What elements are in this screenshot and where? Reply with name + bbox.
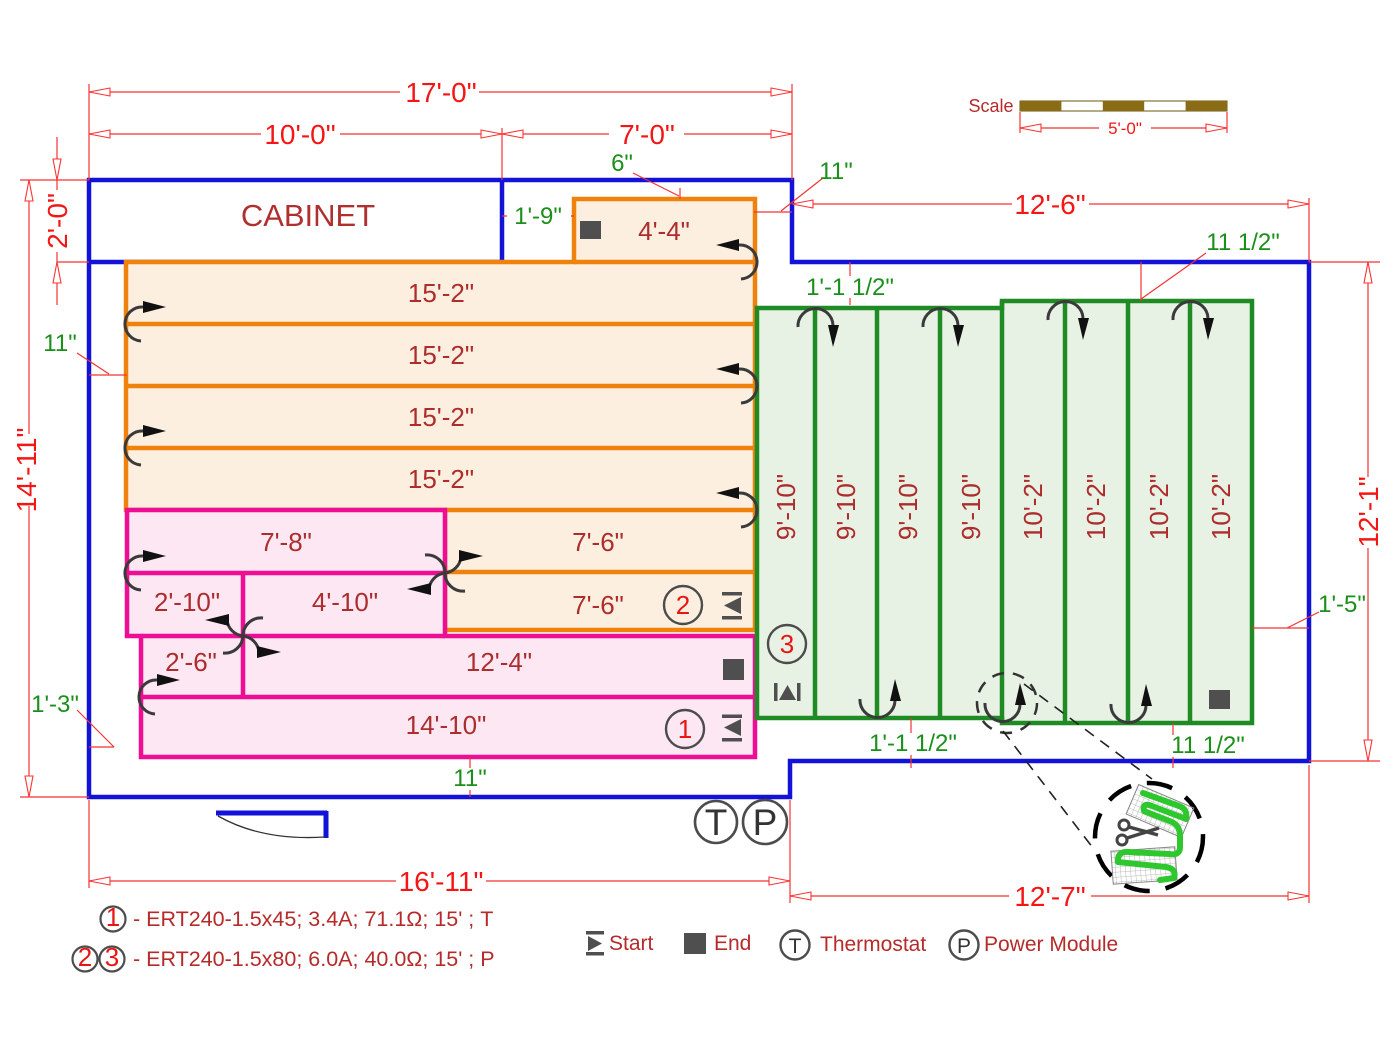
svg-text:1: 1 [106, 902, 120, 932]
svg-text:9'-10": 9'-10" [956, 474, 986, 540]
svg-text:10'-2": 10'-2" [1206, 474, 1236, 540]
svg-text:2'-10": 2'-10" [154, 587, 220, 617]
svg-text:3: 3 [105, 942, 119, 972]
svg-text:11": 11" [453, 765, 486, 792]
svg-text:Power Module: Power Module [984, 933, 1118, 956]
svg-text:16'-11": 16'-11" [399, 866, 484, 897]
svg-text:2: 2 [676, 590, 690, 620]
svg-text:12'-6": 12'-6" [1014, 189, 1085, 220]
svg-text:CABINET: CABINET [241, 198, 375, 233]
svg-text:9'-10": 9'-10" [893, 474, 923, 540]
svg-text:9'-10": 9'-10" [831, 474, 861, 540]
svg-text:2'-6": 2'-6" [165, 647, 217, 677]
svg-text:4'-10": 4'-10" [312, 587, 378, 617]
svg-text:T: T [705, 802, 728, 843]
svg-text:15'-2": 15'-2" [408, 464, 474, 494]
svg-text:11": 11" [43, 330, 76, 357]
svg-text:2: 2 [78, 942, 92, 972]
svg-text:15'-2": 15'-2" [408, 402, 474, 432]
svg-text:15'-2": 15'-2" [408, 340, 474, 370]
svg-text:3: 3 [780, 629, 794, 659]
svg-text:P: P [753, 802, 778, 843]
svg-text:P: P [957, 935, 971, 958]
svg-text:T: T [789, 935, 802, 958]
svg-text:7'-8": 7'-8" [260, 527, 312, 557]
svg-text:1'-5": 1'-5" [1318, 591, 1366, 618]
svg-text:Start: Start [609, 932, 654, 955]
svg-text:12'-1": 12'-1" [1353, 476, 1384, 547]
svg-text:4'-4": 4'-4" [638, 216, 690, 246]
svg-text:1'-9": 1'-9" [514, 203, 562, 230]
svg-text:10'-2": 10'-2" [1018, 474, 1048, 540]
svg-text:End: End [714, 932, 751, 955]
svg-text:1: 1 [678, 714, 692, 744]
svg-text:7'-6": 7'-6" [572, 590, 624, 620]
svg-text:7'-0": 7'-0" [619, 119, 675, 150]
svg-text:11": 11" [819, 158, 852, 185]
svg-text:7'-6": 7'-6" [572, 527, 624, 557]
svg-text:10'-0": 10'-0" [264, 119, 335, 150]
svg-text:12'-7": 12'-7" [1014, 881, 1085, 912]
svg-text:14'-11": 14'-11" [11, 428, 42, 513]
svg-text:15'-2": 15'-2" [408, 278, 474, 308]
svg-text:Scale: Scale [968, 96, 1013, 116]
svg-text:12'-4": 12'-4" [466, 647, 532, 677]
svg-text:10'-2": 10'-2" [1081, 474, 1111, 540]
svg-text:14'-10": 14'-10" [406, 710, 487, 740]
svg-text:10'-2": 10'-2" [1144, 474, 1174, 540]
svg-text:Thermostat: Thermostat [820, 933, 926, 956]
svg-text:9'-10": 9'-10" [771, 474, 801, 540]
svg-text:6": 6" [611, 150, 633, 177]
svg-text:5'-0": 5'-0" [1108, 119, 1142, 138]
svg-text:1'-1 1/2": 1'-1 1/2" [806, 274, 894, 301]
svg-text:11 1/2": 11 1/2" [1206, 229, 1279, 256]
svg-text:2'-0": 2'-0" [42, 193, 73, 249]
svg-text:11 1/2": 11 1/2" [1171, 732, 1244, 759]
svg-text:17'-0": 17'-0" [405, 77, 476, 108]
svg-text:- ERT240-1.5x45; 3.4A; 71.1Ω;: - ERT240-1.5x45; 3.4A; 71.1Ω; 15' ; T [133, 907, 493, 931]
svg-text:1'-1 1/2": 1'-1 1/2" [869, 730, 957, 757]
svg-text:1'-3": 1'-3" [31, 691, 79, 718]
svg-text:- ERT240-1.5x80; 6.0A; 40.0Ω;: - ERT240-1.5x80; 6.0A; 40.0Ω; 15' ; P [133, 947, 495, 971]
